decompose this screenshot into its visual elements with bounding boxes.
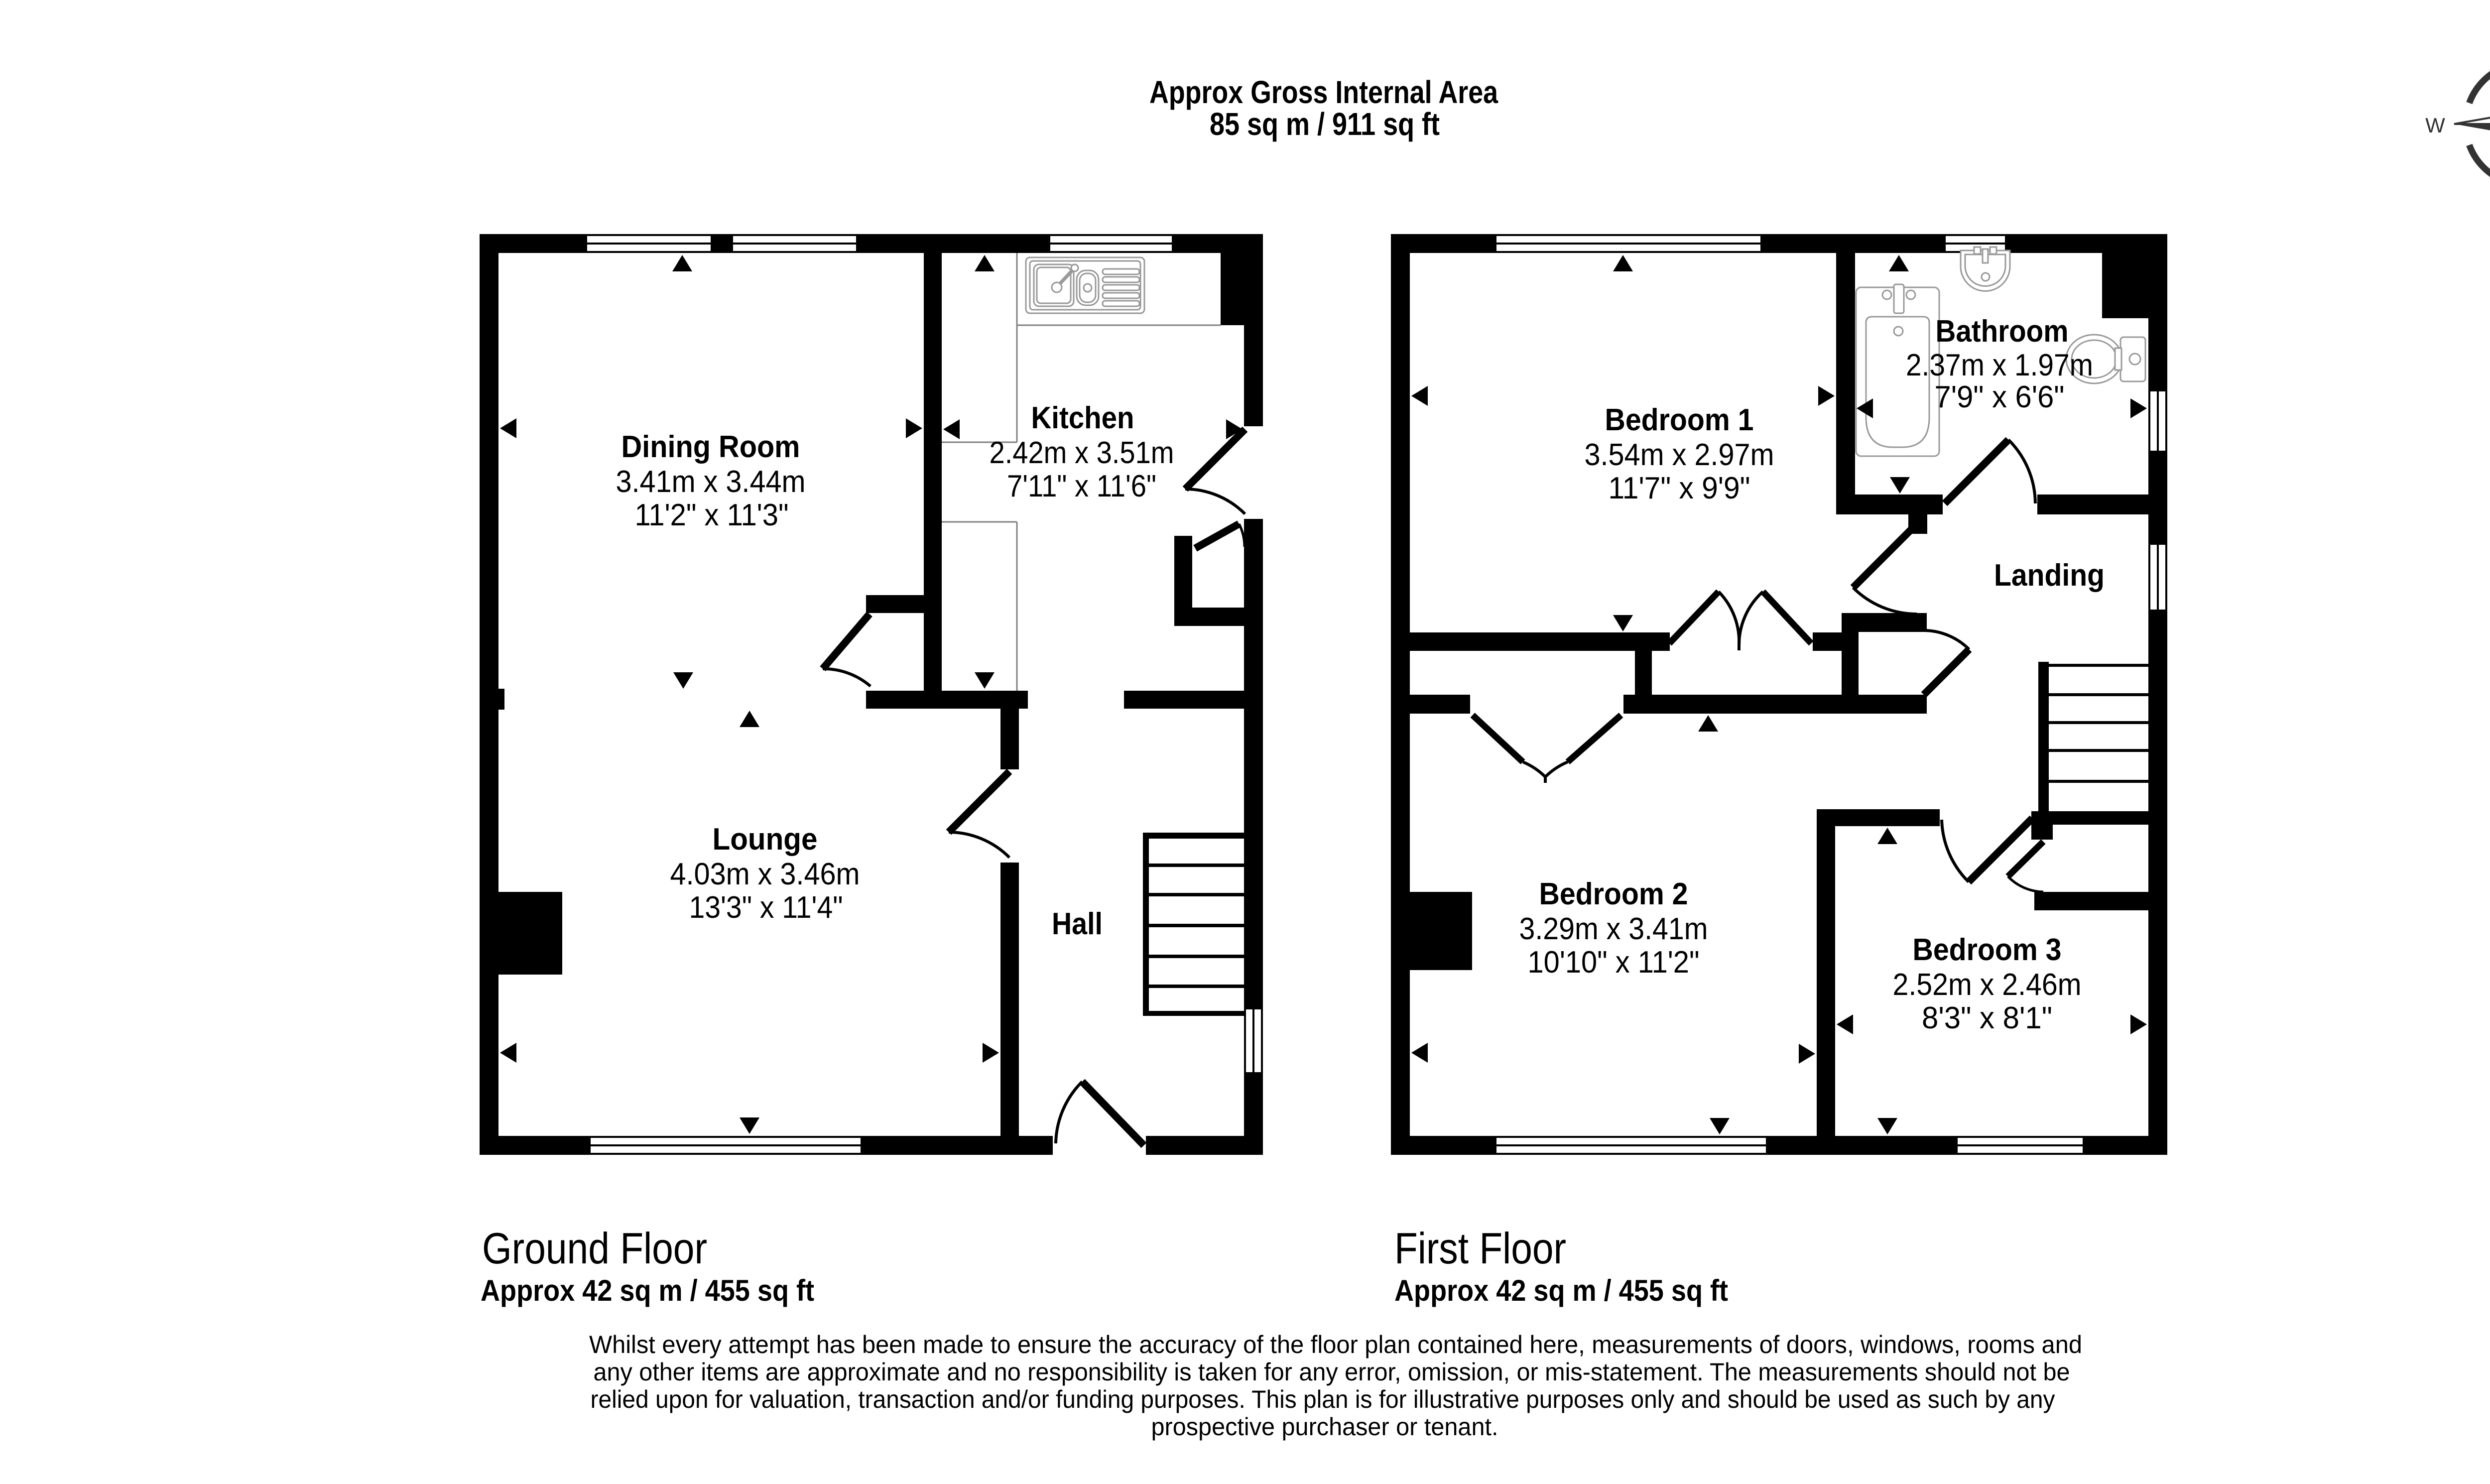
- svg-text:10'10" x 11'2": 10'10" x 11'2": [1528, 945, 1700, 980]
- svg-text:13'3" x 11'4": 13'3" x 11'4": [689, 890, 843, 925]
- svg-text:First Floor: First Floor: [1394, 1224, 1566, 1273]
- svg-text:W: W: [2425, 114, 2445, 137]
- svg-text:Whilst every attempt has been: Whilst every attempt has been made to en…: [589, 1331, 2082, 1359]
- svg-text:Dining Room: Dining Room: [622, 430, 800, 464]
- svg-text:3.54m x 2.97m: 3.54m x 2.97m: [1585, 438, 1774, 472]
- svg-text:relied upon for valuation, tra: relied upon for valuation, transaction a…: [591, 1385, 2055, 1413]
- svg-text:2.37m x 1.97m: 2.37m x 1.97m: [1906, 348, 2093, 382]
- svg-text:Hall: Hall: [1052, 907, 1103, 941]
- svg-text:Bedroom 3: Bedroom 3: [1913, 933, 2062, 967]
- svg-text:3.29m x 3.41m: 3.29m x 3.41m: [1519, 912, 1708, 946]
- svg-text:3.41m x 3.44m: 3.41m x 3.44m: [616, 465, 806, 499]
- svg-text:11'7" x 9'9": 11'7" x 9'9": [1609, 471, 1750, 505]
- svg-text:any other items are approximat: any other items are approximate and no r…: [594, 1358, 2070, 1386]
- svg-text:8'3" x 8'1": 8'3" x 8'1": [1922, 1001, 2052, 1035]
- svg-text:7'9" x 6'6": 7'9" x 6'6": [1935, 380, 2065, 414]
- svg-text:Bedroom 2: Bedroom 2: [1539, 877, 1688, 911]
- svg-text:Landing: Landing: [1994, 558, 2105, 593]
- svg-text:prospective purchaser or tenan: prospective purchaser or tenant.: [1151, 1413, 1498, 1441]
- svg-text:Bedroom 1: Bedroom 1: [1605, 403, 1754, 437]
- svg-text:4.03m x 3.46m: 4.03m x 3.46m: [670, 857, 860, 891]
- svg-text:2.42m x 3.51m: 2.42m x 3.51m: [990, 436, 1174, 470]
- svg-text:Lounge: Lounge: [713, 822, 818, 857]
- svg-text:11'2" x 11'3": 11'2" x 11'3": [635, 498, 789, 532]
- svg-text:Ground Floor: Ground Floor: [482, 1224, 707, 1273]
- svg-text:Kitchen: Kitchen: [1031, 401, 1134, 435]
- svg-text:2.52m x 2.46m: 2.52m x 2.46m: [1893, 968, 2082, 1002]
- svg-text:Approx 42 sq m / 455 sq ft: Approx 42 sq m / 455 sq ft: [1394, 1274, 1728, 1307]
- svg-text:Approx Gross Internal Area: Approx Gross Internal Area: [1149, 74, 1498, 110]
- svg-text:Bathroom: Bathroom: [1936, 314, 2069, 349]
- svg-text:Approx 42 sq m / 455 sq ft: Approx 42 sq m / 455 sq ft: [481, 1274, 814, 1307]
- svg-text:85 sq m / 911 sq ft: 85 sq m / 911 sq ft: [1210, 106, 1440, 142]
- svg-text:7'11" x 11'6": 7'11" x 11'6": [1007, 469, 1156, 503]
